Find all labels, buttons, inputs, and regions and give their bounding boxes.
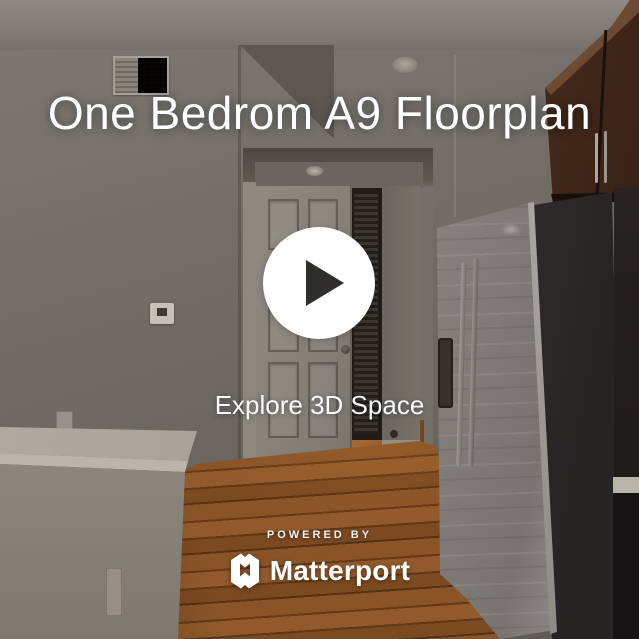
powered-by-label: POWERED BY <box>0 529 639 541</box>
hallway-recessed-light <box>306 166 323 176</box>
matterport-logo-icon <box>229 553 261 589</box>
ceiling <box>0 0 639 50</box>
door-casing <box>243 182 256 474</box>
play-button[interactable] <box>263 227 375 339</box>
play-icon <box>306 260 344 306</box>
explore-3d-space-label: Explore 3D Space <box>0 390 639 421</box>
thermostat <box>150 303 174 324</box>
door-stop <box>390 430 398 438</box>
tour-title: One Bedrom A9 Floorplan <box>0 86 639 140</box>
refrigerator-brand-mark <box>500 223 522 236</box>
door-knob <box>341 345 350 354</box>
recessed-ceiling-light <box>392 57 418 73</box>
matterport-wordmark: Matterport <box>270 555 410 587</box>
hallway-right-wall <box>382 186 420 470</box>
cabinet-handle <box>595 133 598 183</box>
far-countertop <box>613 477 639 493</box>
hallway-ceiling <box>255 162 423 188</box>
matterport-brand: Matterport <box>0 553 639 589</box>
matterport-3d-tour-embed[interactable]: One Bedrom A9 Floorplan Explore 3D Space… <box>0 0 639 639</box>
